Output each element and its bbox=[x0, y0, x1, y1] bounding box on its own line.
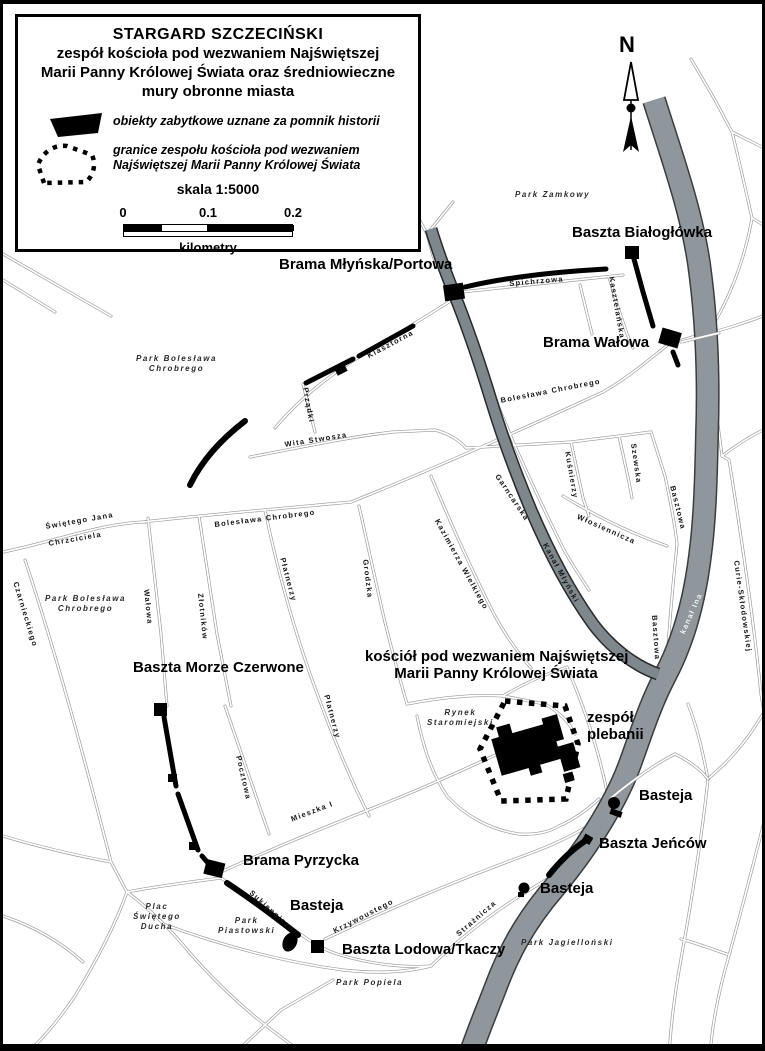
scale-tick-0: 0 bbox=[119, 205, 126, 220]
legend-monuments-label: obiekty zabytkowe uznane za pomnik histo… bbox=[113, 114, 380, 129]
baszta-morze-czerwone-mark bbox=[154, 703, 167, 716]
map-subtitle-1: zespół kościoła pod wezwaniem Najświętsz… bbox=[18, 44, 418, 63]
baszta-lodowa-mark bbox=[311, 940, 324, 953]
north-label: N bbox=[619, 32, 635, 58]
map-subtitle-3: mury obronne miasta bbox=[18, 82, 418, 101]
brama-mlynska-mark bbox=[443, 283, 465, 302]
brama-walowa-mark bbox=[658, 328, 682, 349]
scale-bar-top-row bbox=[123, 224, 293, 232]
legend-boundary-line2: Najświętszej Marii Panny Królowej Świata bbox=[113, 158, 360, 173]
legend-item-monuments: obiekty zabytkowe uznane za pomnik histo… bbox=[18, 109, 418, 139]
stargard-monument-map: Baszta BiałogłówkaBrama Młyńska/PortowaB… bbox=[0, 0, 765, 1051]
scale-text: skala 1:5000 bbox=[18, 180, 418, 199]
city-walls bbox=[154, 246, 682, 954]
baszta-bialoglowka-mark bbox=[625, 246, 639, 259]
monument-symbol-icon bbox=[46, 111, 108, 139]
legend-boundary-line1: granice zespołu kościoła pod wezwaniem bbox=[113, 143, 360, 158]
basteja-wschodnia-mark bbox=[519, 883, 530, 894]
mill-canal bbox=[431, 229, 658, 674]
legend-boundary-label: granice zespołu kościoła pod wezwaniem N… bbox=[113, 143, 360, 173]
map-subtitle-2: Marii Panny Królowej Świata oraz średnio… bbox=[18, 63, 418, 82]
title-legend-box: STARGARD SZCZECIŃSKI zespół kościoła pod… bbox=[15, 14, 421, 252]
church-complex bbox=[480, 701, 583, 801]
scale-bar-bottom-row bbox=[123, 232, 293, 237]
basteja-polnocna-mark bbox=[608, 797, 620, 809]
map-title: STARGARD SZCZECIŃSKI bbox=[18, 26, 418, 44]
scale-unit: kilometry bbox=[179, 240, 237, 255]
scale-tick-01: 0.1 bbox=[199, 205, 217, 220]
plebania-building bbox=[555, 742, 583, 783]
scale-bar: 0 0.1 0.2 kilometry bbox=[123, 205, 293, 257]
brama-pyrzycka-mark bbox=[203, 859, 225, 878]
scale-tick-02: 0.2 bbox=[284, 205, 302, 220]
north-arrow-icon bbox=[623, 62, 639, 152]
